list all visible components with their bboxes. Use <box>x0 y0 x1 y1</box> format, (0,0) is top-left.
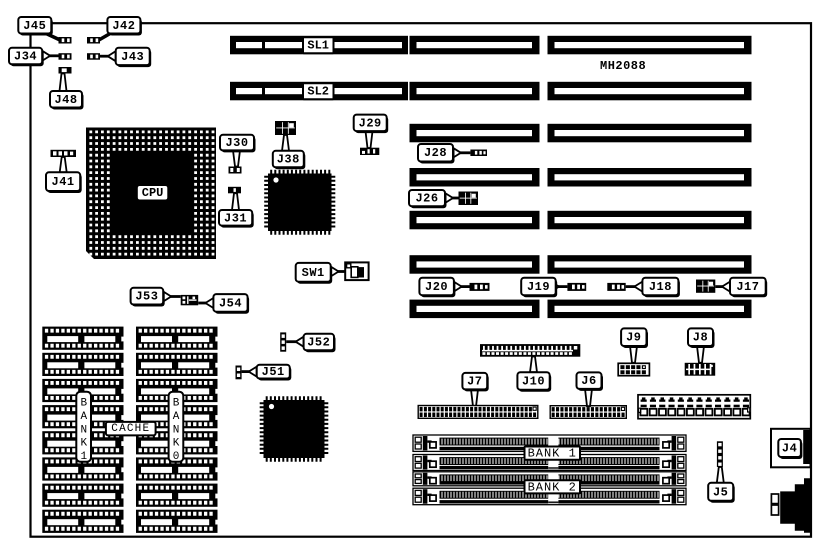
svg-text:J26: J26 <box>415 192 438 206</box>
svg-text:J48: J48 <box>54 93 77 107</box>
svg-text:BANK1: BANK1 <box>80 398 87 464</box>
svg-text:J4: J4 <box>782 442 797 456</box>
svg-text:J7: J7 <box>467 375 482 389</box>
svg-text:SL2: SL2 <box>307 85 329 99</box>
svg-text:J52: J52 <box>307 336 330 350</box>
svg-text:SL1: SL1 <box>307 39 329 53</box>
svg-text:BANK 1: BANK 1 <box>528 447 577 461</box>
svg-text:J17: J17 <box>736 280 759 294</box>
svg-text:J42: J42 <box>112 19 135 33</box>
svg-text:J31: J31 <box>224 211 247 225</box>
svg-text:J29: J29 <box>359 116 382 130</box>
svg-text:BANK0: BANK0 <box>173 398 180 464</box>
svg-text:MH2088: MH2088 <box>600 59 646 73</box>
svg-text:J19: J19 <box>527 280 550 294</box>
svg-text:J54: J54 <box>219 296 242 310</box>
svg-text:SW1: SW1 <box>302 266 325 280</box>
svg-text:J5: J5 <box>713 485 728 499</box>
svg-text:J18: J18 <box>649 280 672 294</box>
svg-text:J45: J45 <box>23 19 46 33</box>
svg-text:J51: J51 <box>262 365 285 379</box>
svg-text:J20: J20 <box>425 280 448 294</box>
svg-text:J10: J10 <box>522 374 545 388</box>
svg-text:CACHE: CACHE <box>111 423 150 435</box>
svg-text:J30: J30 <box>225 136 248 150</box>
svg-text:J6: J6 <box>581 374 596 388</box>
svg-text:J41: J41 <box>52 175 75 189</box>
svg-text:J38: J38 <box>277 153 300 167</box>
svg-text:J9: J9 <box>626 331 641 345</box>
svg-text:J8: J8 <box>693 331 708 345</box>
svg-text:J34: J34 <box>14 50 37 64</box>
svg-text:BANK 2: BANK 2 <box>528 480 577 494</box>
svg-text:CPU: CPU <box>142 186 164 200</box>
svg-text:J28: J28 <box>424 146 447 160</box>
svg-text:J43: J43 <box>121 50 144 64</box>
svg-text:J53: J53 <box>135 290 158 304</box>
